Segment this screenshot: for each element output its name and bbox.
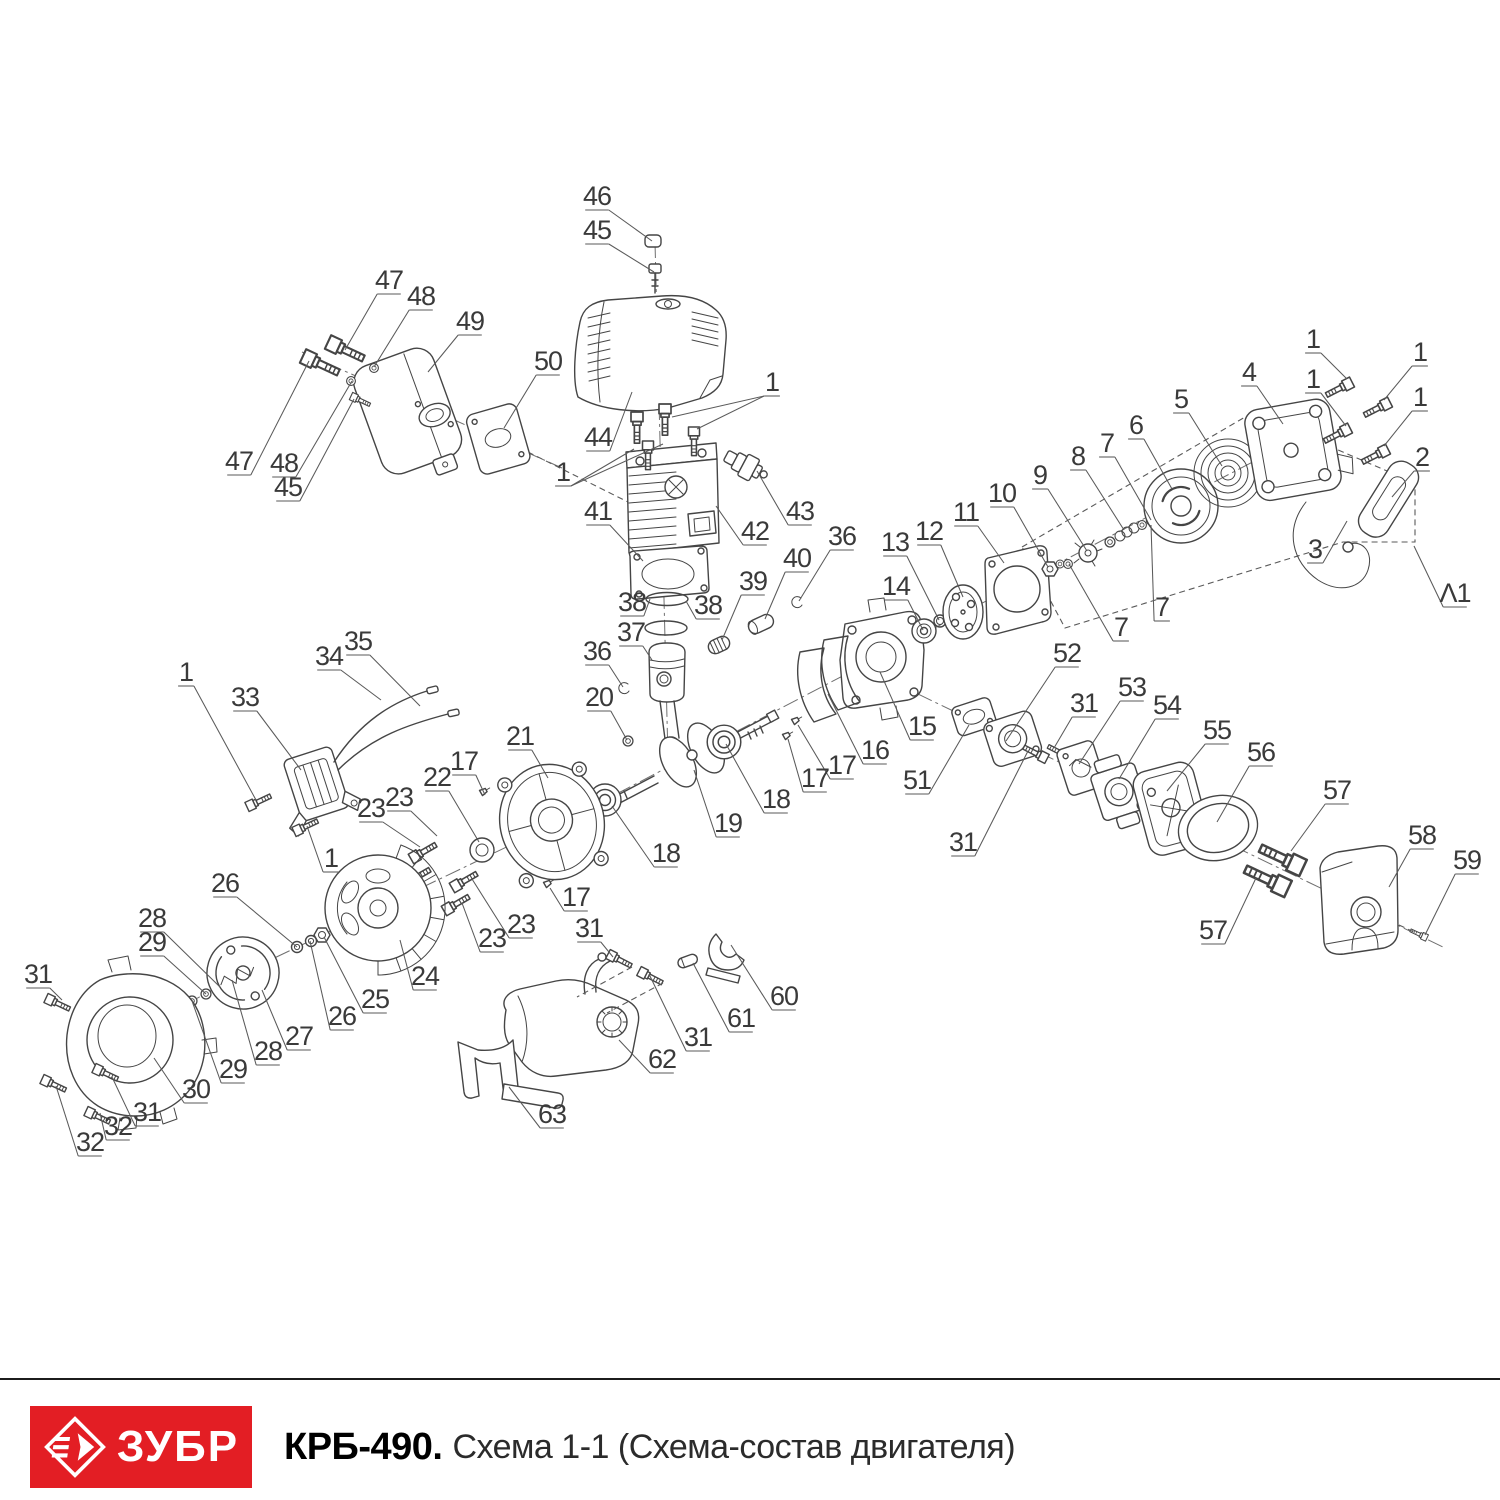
callout-7: 7 [1069, 564, 1129, 642]
starter-handle [1353, 456, 1424, 542]
svg-text:32: 32 [76, 1127, 104, 1157]
svg-text:18: 18 [762, 784, 790, 814]
callout-60: 60 [731, 945, 798, 1011]
callout-31: 31 [949, 751, 1028, 857]
callout-45: 45 [583, 215, 654, 272]
needle-bearing [706, 634, 732, 656]
coil-wires [334, 686, 459, 770]
muffler-gasket [465, 402, 532, 476]
svg-text:27: 27 [285, 1021, 313, 1051]
svg-text:12: 12 [915, 516, 943, 546]
cover-screw [649, 264, 661, 293]
svg-text:42: 42 [741, 516, 769, 546]
svg-text:31: 31 [684, 1022, 712, 1052]
svg-text:38: 38 [694, 590, 722, 620]
callout-12: 12 [915, 516, 963, 597]
callout-17: 17 [450, 746, 485, 795]
svg-text:26: 26 [211, 868, 239, 898]
svg-text:56: 56 [1247, 737, 1275, 767]
callout-8: 8 [1070, 441, 1124, 530]
callout-59: 59 [1425, 845, 1481, 935]
callout-9: 9 [1032, 460, 1087, 551]
svg-text:24: 24 [411, 961, 440, 991]
svg-text:51: 51 [903, 765, 931, 795]
cylinder [626, 443, 719, 553]
callout-47: 47 [345, 265, 403, 350]
airfilter-cover [1320, 846, 1398, 955]
callout-18: 18 [612, 806, 680, 868]
svg-text:63: 63 [538, 1099, 566, 1129]
callout-5: 5 [1173, 384, 1222, 466]
svg-text:50: 50 [534, 346, 562, 376]
svg-text:55: 55 [1203, 715, 1231, 745]
svg-text:48: 48 [407, 281, 435, 311]
callout-layer: 4645474849504411474845414243383837394036… [24, 181, 1481, 1157]
svg-text:1: 1 [1306, 364, 1320, 394]
schema-title: КРБ-490. Схема 1-1 (Схема-состав двигате… [284, 1406, 1015, 1488]
callout-55: 55 [1167, 715, 1231, 791]
cover-wing-screw [1399, 925, 1428, 941]
svg-text:31: 31 [949, 827, 977, 857]
flywheel [325, 845, 445, 975]
starter-housing [1243, 395, 1357, 503]
callout-7: 7 [1099, 428, 1151, 520]
svg-text:23: 23 [507, 909, 535, 939]
case-gasket-11 [985, 546, 1051, 634]
bracket-60 [706, 934, 744, 983]
svg-text:1: 1 [179, 657, 193, 687]
svg-text:36: 36 [828, 521, 856, 551]
svg-text:38: 38 [618, 587, 646, 617]
svg-text:60: 60 [770, 981, 798, 1011]
svg-text:34: 34 [315, 641, 344, 671]
starter-hardware [1042, 515, 1158, 577]
callout-6: 6 [1128, 410, 1172, 489]
svg-text:33: 33 [231, 682, 259, 712]
svg-text:31: 31 [24, 959, 52, 989]
svg-text:35: 35 [344, 626, 372, 656]
clutch [194, 924, 291, 1021]
callout-35: 35 [344, 626, 420, 706]
svg-text:22: 22 [423, 762, 451, 792]
washer-20 [623, 736, 633, 746]
starter-rope [1293, 502, 1369, 588]
bearing-14 [912, 619, 936, 643]
svg-text:53: 53 [1118, 672, 1146, 702]
zubr-logo-text: ЗУБР [117, 1425, 239, 1469]
callout-49: 49 [428, 306, 484, 372]
svg-text:23: 23 [357, 793, 385, 823]
svg-text:14: 14 [882, 571, 911, 601]
callout-48: 48 [270, 381, 352, 478]
svg-text:46: 46 [583, 181, 611, 211]
svg-text:1: 1 [1413, 337, 1427, 367]
piston-pin [746, 612, 775, 636]
spark-plug [720, 445, 771, 488]
zubr-logo-glyph [43, 1415, 107, 1479]
svg-text:45: 45 [274, 472, 302, 502]
svg-text:1: 1 [1306, 324, 1320, 354]
svg-text:7: 7 [1100, 428, 1114, 458]
engine-cover [575, 296, 727, 411]
svg-text:31: 31 [133, 1097, 161, 1127]
svg-text:18: 18 [652, 838, 680, 868]
svg-text:1: 1 [324, 843, 338, 873]
page: 4645474849504411474845414243383837394036… [0, 0, 1500, 1500]
svg-text:11: 11 [953, 497, 979, 527]
piston [649, 643, 685, 702]
callout-33: 33 [231, 682, 301, 770]
svg-text:43: 43 [786, 496, 814, 526]
svg-text:59: 59 [1453, 845, 1481, 875]
svg-text:26: 26 [328, 1001, 356, 1031]
svg-text:58: 58 [1408, 820, 1436, 850]
callout-31: 31 [1054, 688, 1098, 748]
svg-text:19: 19 [714, 808, 742, 838]
piston-rings [645, 593, 688, 636]
svg-text:5: 5 [1174, 384, 1188, 414]
svg-text:47: 47 [375, 265, 403, 295]
svg-text:6: 6 [1129, 410, 1143, 440]
footer-divider [0, 1378, 1500, 1380]
svg-text:37: 37 [617, 617, 645, 647]
callout-1: 1 [178, 657, 256, 800]
cover-cap [645, 235, 661, 247]
svg-text:25: 25 [361, 984, 389, 1014]
svg-text:47: 47 [225, 446, 253, 476]
svg-text:8: 8 [1071, 441, 1085, 471]
svg-text:7: 7 [1155, 592, 1169, 622]
callout-23: 23 [462, 903, 506, 953]
svg-text:36: 36 [583, 636, 611, 666]
callout-57: 57 [1199, 878, 1256, 945]
exploded-engine-diagram: 4645474849504411474845414243383837394036… [0, 0, 1500, 1500]
svg-text:45: 45 [583, 215, 611, 245]
svg-text:29: 29 [138, 927, 166, 957]
svg-text:44: 44 [584, 422, 613, 452]
svg-text:2: 2 [1415, 442, 1429, 472]
svg-text:15: 15 [908, 711, 936, 741]
svg-text:1: 1 [1413, 382, 1427, 412]
callout-37: 37 [617, 617, 652, 660]
svg-text:10: 10 [988, 478, 1016, 508]
svg-text:17: 17 [828, 750, 856, 780]
svg-text:28: 28 [254, 1036, 282, 1066]
svg-text:1: 1 [556, 457, 570, 487]
callout-3: 3 [1307, 521, 1347, 564]
fuel-tank [504, 953, 639, 1076]
svg-text:21: 21 [506, 721, 534, 751]
svg-text:31: 31 [575, 913, 603, 943]
svg-text:9: 9 [1033, 460, 1047, 490]
zubr-logo: ЗУБР [30, 1406, 252, 1488]
callout-31: 31 [24, 959, 62, 1000]
callout-31: 31 [575, 913, 613, 957]
callout-19: 19 [694, 770, 742, 838]
svg-text:23: 23 [385, 782, 413, 812]
callout-20: 20 [585, 682, 627, 740]
callout-17: 17 [788, 739, 829, 793]
svg-text:Λ1: Λ1 [1439, 578, 1470, 608]
svg-text:1: 1 [765, 367, 779, 397]
svg-text:30: 30 [182, 1074, 210, 1104]
crankcase-right [840, 598, 924, 720]
svg-text:13: 13 [881, 527, 909, 557]
svg-text:17: 17 [450, 746, 478, 776]
svg-text:61: 61 [727, 1003, 755, 1033]
callout-40: 40 [765, 543, 811, 619]
muffler [349, 343, 472, 492]
schema-subtitle: Схема 1-1 (Схема-состав двигателя) [452, 1428, 1015, 1467]
svg-text:41: 41 [584, 496, 612, 526]
crankcase-half-left [487, 753, 617, 892]
svg-text:29: 29 [219, 1054, 247, 1084]
svg-text:23: 23 [478, 923, 506, 953]
callout-1: 1 [307, 826, 339, 873]
svg-text:4: 4 [1242, 357, 1257, 387]
callout-Λ1: Λ1 [1414, 546, 1471, 608]
callout-32: 32 [100, 1111, 132, 1141]
svg-text:52: 52 [1053, 638, 1081, 668]
svg-text:40: 40 [783, 543, 811, 573]
svg-text:16: 16 [861, 735, 889, 765]
oil-seal [470, 838, 494, 862]
callout-57: 57 [1291, 775, 1351, 851]
callout-26: 26 [211, 868, 297, 947]
starter-pulley [1144, 469, 1218, 543]
svg-text:7: 7 [1114, 612, 1128, 642]
starter-cup [943, 585, 983, 639]
svg-text:54: 54 [1153, 690, 1182, 720]
svg-text:20: 20 [585, 682, 613, 712]
svg-text:31: 31 [1070, 688, 1098, 718]
svg-text:49: 49 [456, 306, 484, 336]
svg-text:39: 39 [739, 566, 767, 596]
crank-bearing-right [707, 725, 741, 759]
svg-text:17: 17 [562, 882, 590, 912]
crankshaft [612, 710, 779, 805]
svg-text:62: 62 [648, 1044, 676, 1074]
schema-model: КРБ-490. [284, 1426, 442, 1469]
callout-17: 17 [550, 882, 590, 912]
svg-text:17: 17 [801, 763, 829, 793]
callout-42: 42 [716, 506, 769, 546]
svg-text:3: 3 [1308, 534, 1322, 564]
svg-text:32: 32 [104, 1111, 132, 1141]
svg-text:57: 57 [1323, 775, 1351, 805]
svg-text:57: 57 [1199, 915, 1227, 945]
callout-38: 38 [618, 587, 650, 617]
